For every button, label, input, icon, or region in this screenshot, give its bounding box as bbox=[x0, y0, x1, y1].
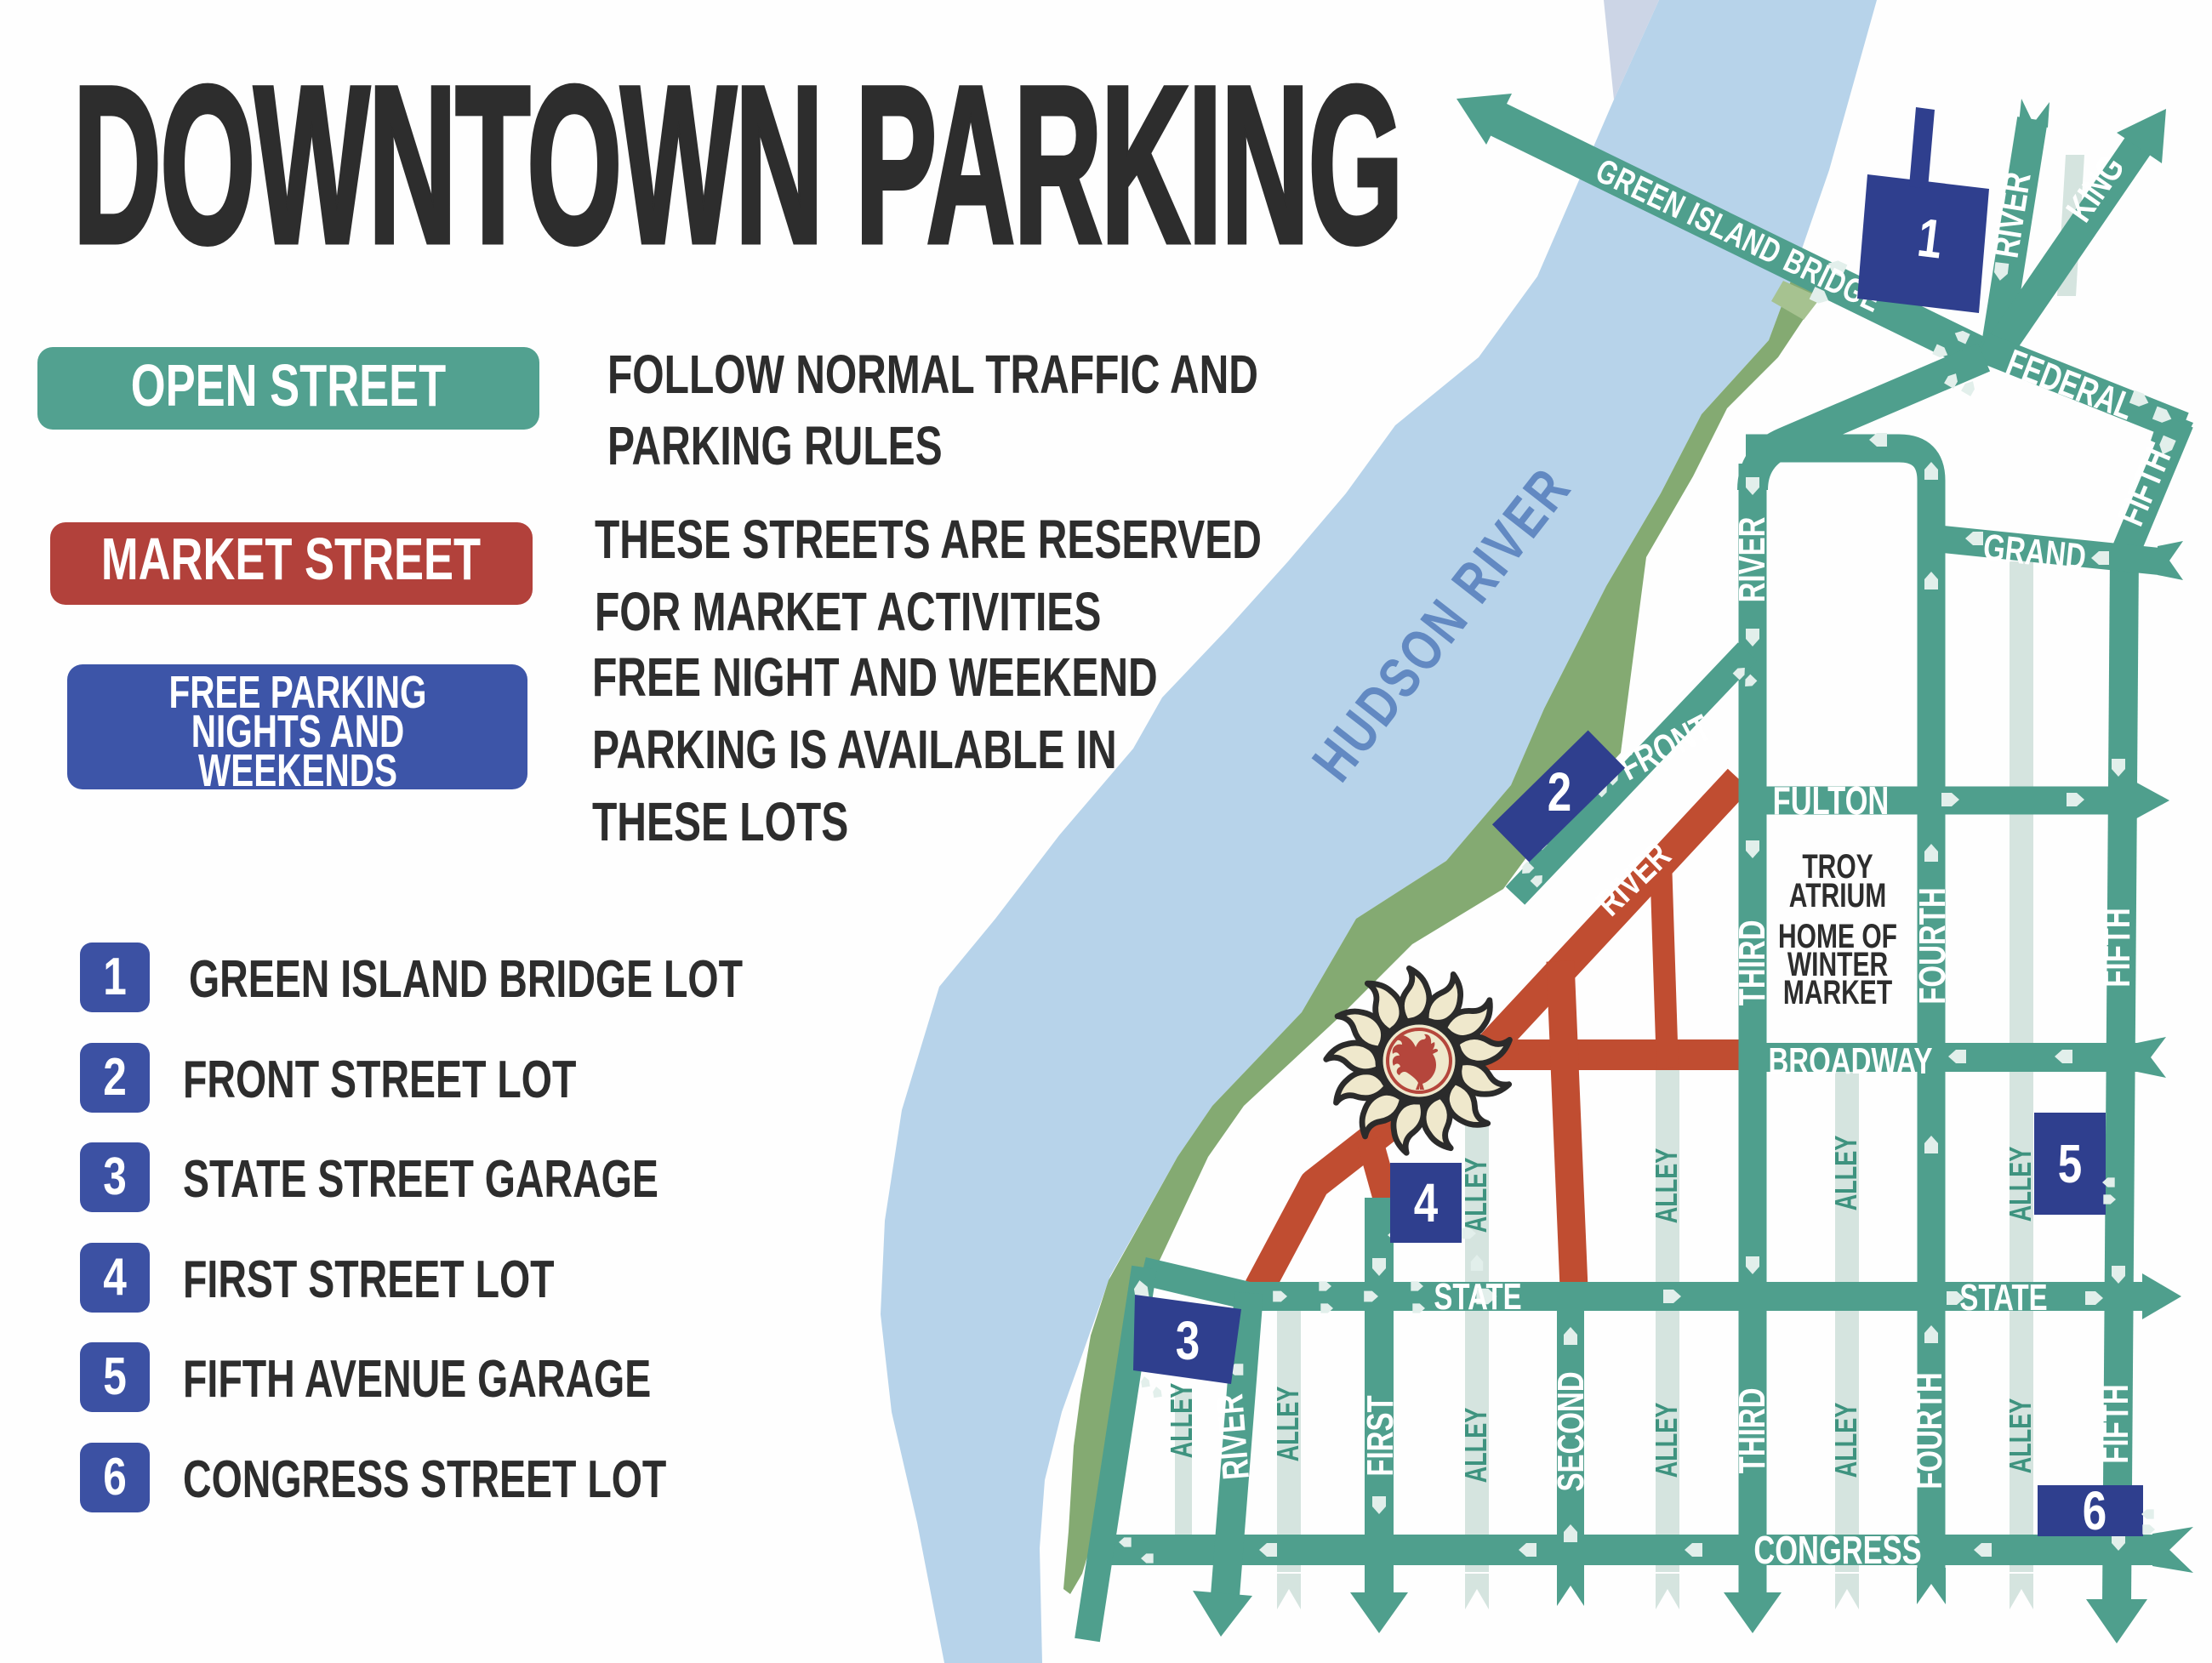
svg-text:5: 5 bbox=[103, 1347, 127, 1406]
svg-text:6: 6 bbox=[103, 1447, 127, 1506]
svg-text:MARKET STREET: MARKET STREET bbox=[101, 527, 481, 593]
svg-text:FOR MARKET ACTIVITIES: FOR MARKET ACTIVITIES bbox=[595, 581, 1101, 641]
svg-text:5: 5 bbox=[2058, 1135, 2082, 1195]
svg-text:3: 3 bbox=[103, 1147, 127, 1206]
svg-text:4: 4 bbox=[103, 1247, 127, 1307]
svg-text:STATE STREET GARAGE: STATE STREET GARAGE bbox=[183, 1148, 658, 1208]
svg-text:ALLEY: ALLEY bbox=[1270, 1387, 1305, 1461]
svg-text:ALLEY: ALLEY bbox=[1458, 1158, 1493, 1233]
svg-text:RIVER: RIVER bbox=[1732, 517, 1774, 603]
svg-text:2: 2 bbox=[103, 1047, 127, 1107]
svg-text:ALLEY: ALLEY bbox=[1458, 1408, 1493, 1483]
svg-text:2: 2 bbox=[1548, 763, 1571, 823]
svg-text:THESE LOTS: THESE LOTS bbox=[592, 791, 848, 851]
svg-text:3: 3 bbox=[1176, 1312, 1200, 1372]
svg-text:ALLEY: ALLEY bbox=[1828, 1403, 1863, 1478]
svg-text:SECOND: SECOND bbox=[1551, 1371, 1593, 1491]
svg-text:THIRD: THIRD bbox=[1732, 1388, 1774, 1474]
svg-text:PARKING IS AVAILABLE IN: PARKING IS AVAILABLE IN bbox=[592, 719, 1117, 779]
svg-text:PARKING RULES: PARKING RULES bbox=[607, 415, 943, 476]
svg-text:BROADWAY: BROADWAY bbox=[1768, 1041, 1932, 1083]
svg-text:ALLEY: ALLEY bbox=[1164, 1383, 1199, 1458]
svg-text:ALLEY: ALLEY bbox=[2003, 1147, 2038, 1222]
svg-text:FOURTH: FOURTH bbox=[1913, 887, 1954, 1004]
svg-text:STATE: STATE bbox=[1434, 1277, 1521, 1318]
svg-text:MARKET: MARKET bbox=[1783, 974, 1893, 1011]
svg-text:1: 1 bbox=[103, 947, 127, 1006]
svg-text:FRONT STREET LOT: FRONT STREET LOT bbox=[183, 1049, 576, 1108]
svg-text:THIRD: THIRD bbox=[1732, 920, 1774, 1006]
svg-text:FIFTH: FIFTH bbox=[2097, 908, 2139, 987]
svg-text:FOLLOW NORMAL TRAFFIC AND: FOLLOW NORMAL TRAFFIC AND bbox=[607, 344, 1258, 404]
svg-text:CONGRESS: CONGRESS bbox=[1753, 1528, 1921, 1572]
svg-text:FIFTH AVENUE GARAGE: FIFTH AVENUE GARAGE bbox=[183, 1348, 651, 1408]
svg-text:6: 6 bbox=[2083, 1482, 2107, 1542]
svg-text:ALLEY: ALLEY bbox=[2003, 1398, 2038, 1473]
svg-text:STATE: STATE bbox=[1959, 1278, 2047, 1319]
svg-text:FIFTH: FIFTH bbox=[2095, 1384, 2137, 1463]
svg-text:OPEN STREET: OPEN STREET bbox=[131, 353, 447, 419]
svg-text:FIRST STREET LOT: FIRST STREET LOT bbox=[183, 1249, 555, 1308]
svg-text:FULTON: FULTON bbox=[1773, 778, 1890, 823]
svg-text:ATRIUM: ATRIUM bbox=[1789, 877, 1886, 914]
svg-text:ALLEY: ALLEY bbox=[1649, 1148, 1684, 1223]
svg-text:GREEN ISLAND BRIDGE LOT: GREEN ISLAND BRIDGE LOT bbox=[189, 948, 743, 1008]
svg-text:RIVER: RIVER bbox=[1210, 1392, 1257, 1481]
svg-text:ALLEY: ALLEY bbox=[1828, 1136, 1863, 1210]
svg-text:DOWNTOWN PARKING: DOWNTOWN PARKING bbox=[73, 39, 1402, 289]
svg-text:CONGRESS STREET LOT: CONGRESS STREET LOT bbox=[183, 1449, 666, 1508]
svg-text:ALLEY: ALLEY bbox=[1649, 1403, 1684, 1478]
svg-text:FREE NIGHT AND WEEKEND: FREE NIGHT AND WEEKEND bbox=[592, 646, 1158, 707]
svg-text:FOURTH: FOURTH bbox=[1909, 1372, 1951, 1489]
svg-text:THESE STREETS ARE RESERVED: THESE STREETS ARE RESERVED bbox=[595, 509, 1262, 569]
svg-text:FIRST: FIRST bbox=[1360, 1395, 1402, 1477]
svg-text:4: 4 bbox=[1414, 1174, 1438, 1234]
svg-text:WEEKENDS: WEEKENDS bbox=[198, 745, 397, 796]
